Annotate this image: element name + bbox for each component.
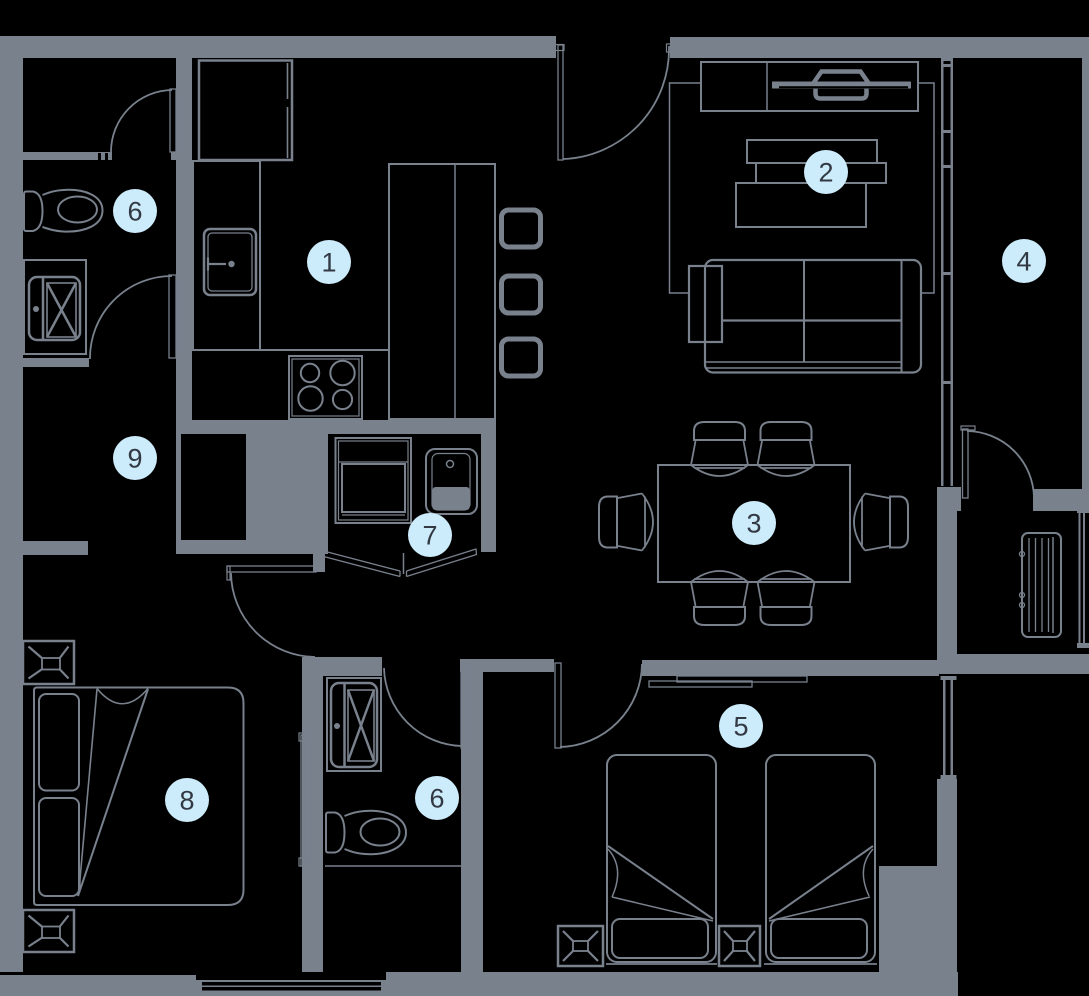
svg-text:7: 7 [422,521,437,551]
svg-text:6: 6 [429,784,444,814]
svg-text:5: 5 [733,712,748,742]
svg-text:6: 6 [127,197,142,227]
svg-text:3: 3 [746,509,761,539]
svg-text:2: 2 [818,158,833,188]
svg-text:9: 9 [127,444,142,474]
svg-text:8: 8 [179,786,194,816]
svg-text:1: 1 [321,248,336,278]
svg-text:4: 4 [1016,247,1031,277]
